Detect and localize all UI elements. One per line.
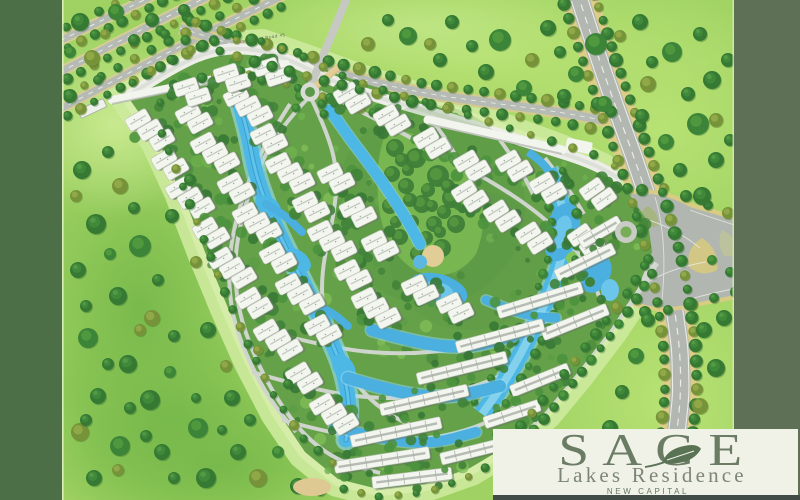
svg-text:Lakes Residence: Lakes Residence <box>557 463 747 487</box>
svg-text:NEW CAPITAL: NEW CAPITAL <box>607 487 689 496</box>
